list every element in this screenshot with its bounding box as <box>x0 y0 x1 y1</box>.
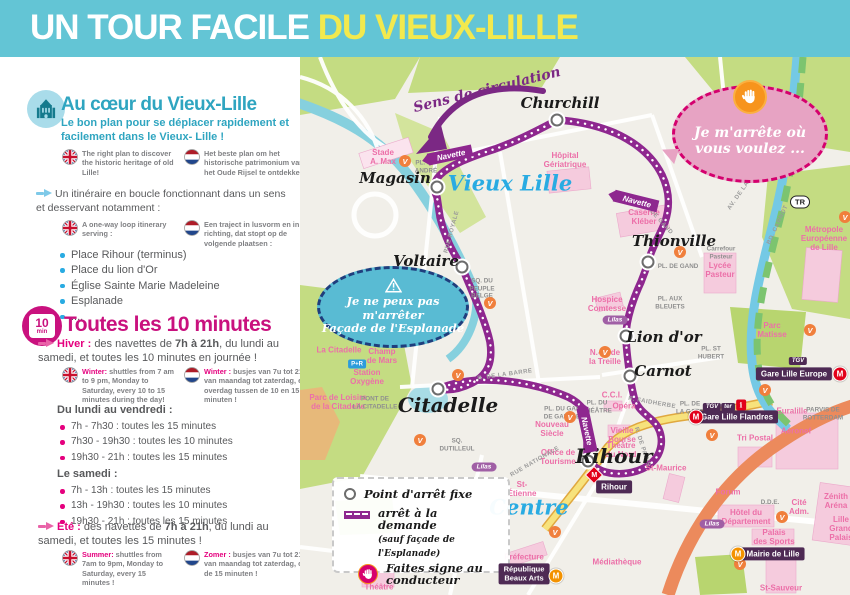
header-band: UN TOUR FACILE DU VIEUX-LILLE <box>0 0 850 57</box>
brochure-page: UN TOUR FACILE DU VIEUX-LILLE Au <box>0 0 850 595</box>
map-top-layer: Sens de circulation Vieux Lille Centre N… <box>300 57 850 595</box>
schedule-item: 7h30 - 19h30 : toutes les 10 minutes <box>60 436 233 448</box>
gare-lille-flandres-badge: Gare Lille Flandres <box>696 410 778 423</box>
translations-row-1: The right plan to discover the historic … <box>62 149 316 177</box>
gare-lille-europe-badge: Gare Lille Europe <box>756 367 832 380</box>
republique-beaux-arts-badge: République Beaux Arts <box>499 563 550 584</box>
winter-en: Winter: shuttles from 7 am to 9 pm, Mond… <box>62 367 174 405</box>
legend-wave: Faites signe au conducteur <box>358 562 500 587</box>
navette-banner: Navette <box>427 144 473 165</box>
section2-heading: Toutes les 10 minutes <box>64 313 271 337</box>
bubble-line: Je ne peux pas m'arrêter <box>320 295 466 323</box>
loop-nl: Een traject in lusvorm en in één richtin… <box>184 220 316 248</box>
legend-demand-text: arrêt à la demande (sauf façade de l'Esp… <box>378 507 500 560</box>
nl-flag-icon <box>184 367 200 383</box>
info-icon: i <box>736 400 746 411</box>
section1-intro: Le bon plan pour se déplacer rapidement … <box>61 117 299 145</box>
translations-row-4: Summer: shuttles from 7am to 9pm, Monday… <box>62 550 316 588</box>
loop-description-text: Un itinéraire en boucle fonctionnant dan… <box>36 188 286 214</box>
summer-nl-label: Zomer : <box>204 550 231 559</box>
bubble-line: vous voulez ... <box>694 141 806 157</box>
cathedral-icon <box>27 90 65 128</box>
loop-description: Un itinéraire en boucle fonctionnant dan… <box>36 188 288 215</box>
section1-heading: Au cœur du Vieux-Lille <box>61 94 257 116</box>
badge-line: Beaux Arts <box>504 574 545 583</box>
translations-row-2: A one-way loop itinerary serving : Een t… <box>62 220 316 248</box>
metro-icon: M <box>833 367 848 382</box>
on-demand-route-icon <box>344 511 370 519</box>
navette-banner: Navette <box>613 190 659 213</box>
direction-label: Sens de circulation <box>412 64 563 116</box>
schedule-item: 13h - 19h30 : toutes les 10 minutes <box>60 500 227 512</box>
schedule-item: 7h - 7h30 : toutes les 15 minutes <box>60 421 233 433</box>
uk-flag-icon <box>62 367 78 383</box>
saturday-heading: Le samedi : <box>57 468 118 480</box>
summer-en-text: Summer: shuttles from 7am to 9pm, Monday… <box>82 550 174 588</box>
summer-text-hours: 7h à 21h <box>165 521 209 533</box>
metro-icon: M <box>549 569 564 584</box>
hand-icon <box>358 564 378 584</box>
nl-flag-icon <box>184 550 200 566</box>
park-and-ride-icon: P+R <box>348 360 366 369</box>
metro-icon: M <box>731 547 746 562</box>
nl-flag-icon <box>184 220 200 236</box>
winter-nl: Winter : busjes van 7u tot 21u, van maan… <box>184 367 316 405</box>
arrow-icon <box>38 339 54 348</box>
uk-flag-icon <box>62 220 78 236</box>
district-label-vieux-lille: Vieux Lille <box>448 171 572 196</box>
winter-en-text: Winter: shuttles from 7 am to 9 pm, Mond… <box>82 367 174 405</box>
summer-label: Été : <box>57 521 81 533</box>
list-item: Esplanade <box>60 295 220 308</box>
map-legend: Point d'arrêt fixe arrêt à la demande (s… <box>332 477 510 573</box>
loop-en-text: A one-way loop itinerary serving : <box>82 220 174 239</box>
nl-flag-icon <box>184 149 200 165</box>
cathedral-glyph <box>33 96 59 122</box>
no-stop-bubble: Je ne peux pas m'arrêter Façade de l'Esp… <box>317 266 469 348</box>
legend-on-demand: arrêt à la demande (sauf façade de l'Esp… <box>344 507 500 560</box>
winter-en-label: Winter: <box>82 367 107 376</box>
translations-row-3: Winter: shuttles from 7 am to 9 pm, Mond… <box>62 367 316 405</box>
translation-en-text: The right plan to discover the historic … <box>82 149 174 177</box>
schedule-item: 19h30 - 21h : toutes les 15 minutes <box>60 452 233 464</box>
summer-en: Summer: shuttles from 7am to 9pm, Monday… <box>62 550 174 588</box>
uk-flag-icon <box>62 149 78 165</box>
mairie-de-lille-badge: Mairie de Lille <box>742 547 805 560</box>
list-item: Église Sainte Marie Madeleine <box>60 280 220 293</box>
arrow-icon <box>36 189 52 198</box>
bubble-line: Je m'arrête où <box>694 125 806 141</box>
winter-text-pre: des navettes de <box>94 338 175 350</box>
ten-min-value: 10 <box>35 317 48 329</box>
winter-service: Hiver : des navettes de 7h à 21h, du lun… <box>38 337 290 366</box>
legend-demand-line2: (sauf façade de l'Esplanade) <box>378 535 455 559</box>
summer-service: Été : des navettes de 7h à 21h, du lundi… <box>38 520 294 549</box>
info-panel: Au cœur du Vieux-Lille Le bon plan pour … <box>0 57 300 595</box>
hand-icon <box>733 80 767 114</box>
translation-nl: Het beste plan om het historische patrim… <box>184 149 316 177</box>
stop-anywhere-bubble: Je m'arrête où vous voulez ... <box>672 85 828 183</box>
list-item: Place Rihour (terminus) <box>60 249 220 262</box>
schedule-item: 7h - 13h : toutes les 15 minutes <box>60 485 227 497</box>
weekdays-heading: Du lundi au vendredi : <box>57 404 173 416</box>
summer-text-pre: des navettes de <box>84 521 165 533</box>
ten-min-box: 10 min <box>29 314 55 338</box>
ten-min-unit: min <box>37 329 48 335</box>
arrow-icon <box>38 522 54 531</box>
list-item: Place du lion d'Or <box>60 264 220 277</box>
summer-nl: Zomer : busjes van 7u tot 21u, van maand… <box>184 550 316 588</box>
tr-badge: TR <box>790 196 810 209</box>
warning-triangle-icon <box>385 278 402 293</box>
weekdays-schedule: 7h - 7h30 : toutes les 15 minutes 7h30 -… <box>60 421 233 467</box>
winter-text-hours: 7h à 21h <box>175 338 219 350</box>
city-map: Stade A. MaxHôpital GériatriqueCaserne K… <box>300 57 850 595</box>
translation-en: The right plan to discover the historic … <box>62 149 174 177</box>
legend-fixed-stop: Point d'arrêt fixe <box>344 488 500 501</box>
stop-anywhere-text: Je m'arrête où vous voulez ... <box>694 125 806 157</box>
legend-fixed-text: Point d'arrêt fixe <box>364 488 472 501</box>
tgv-chip: TGV <box>789 357 807 365</box>
uk-flag-icon <box>62 550 78 566</box>
fixed-stop-icon <box>344 488 356 500</box>
winter-nl-label: Winter : <box>204 367 231 376</box>
metro-icon: M <box>689 410 704 425</box>
title-part-2: DU VIEUX-LILLE <box>318 8 578 47</box>
loop-en: A one-way loop itinerary serving : <box>62 220 174 248</box>
navette-banner: Navette <box>576 407 597 453</box>
bubble-line: Façade de l'Esplanade <box>320 322 466 336</box>
rihour-metro-badge: Rihour <box>596 480 632 493</box>
summer-en-label: Summer: <box>82 550 114 559</box>
winter-label: Hiver : <box>57 338 91 350</box>
no-stop-text: Je ne peux pas m'arrêter Façade de l'Esp… <box>320 295 466 336</box>
metro-letter: M <box>591 472 597 479</box>
legend-demand-line1: arrêt à la demande <box>378 506 437 533</box>
page-title: UN TOUR FACILE DU VIEUX-LILLE <box>30 8 578 48</box>
title-part-1: UN TOUR FACILE <box>30 8 318 47</box>
legend-wave-text: Faites signe au conducteur <box>386 562 500 587</box>
